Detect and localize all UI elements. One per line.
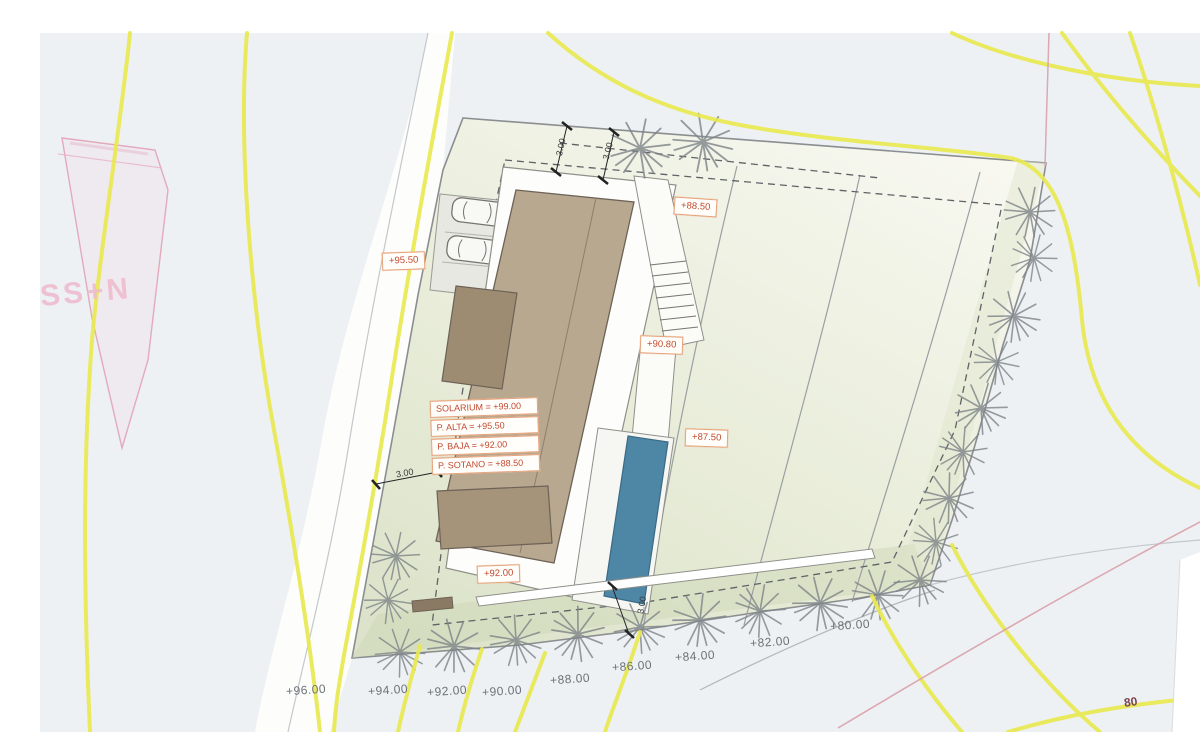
contour-label: +90.00	[482, 683, 523, 700]
level-row: P. BAJA = +92.00	[431, 435, 540, 456]
contour-value-80: 80	[1123, 694, 1138, 710]
house-lower-wing	[437, 486, 552, 549]
level-row: SOLARIUM = +99.00	[430, 397, 539, 418]
spot-elevation-label: +87.50	[685, 428, 729, 447]
spot-elevation-label: +95.50	[382, 251, 426, 270]
spot-elevation-label: +88.50	[673, 197, 717, 217]
contour-label: +88.00	[550, 671, 591, 688]
site-plan-canvas: SS+N +95.50 +88.50 +90.80 +87.50 +92.00 …	[0, 0, 1200, 732]
level-table: SOLARIUM = +99.00 P. ALTA = +95.50 P. BA…	[430, 397, 541, 477]
contour-label: +96.00	[286, 682, 327, 699]
level-row: P. SOTANO = +88.50	[432, 454, 541, 475]
spot-elevation-label: +92.00	[477, 564, 521, 583]
contour-label: +84.00	[675, 648, 716, 665]
contour-label: +92.00	[427, 683, 468, 700]
spot-elevation-label: +90.80	[640, 335, 684, 354]
contour-label: +82.00	[750, 634, 791, 651]
contour-label: +80.00	[830, 617, 871, 634]
level-row: P. ALTA = +95.50	[430, 416, 539, 437]
walkway	[632, 348, 676, 442]
contour-label: +94.00	[368, 682, 409, 699]
site-plan-drawing	[0, 0, 1200, 732]
contour-label: +86.00	[612, 658, 653, 675]
